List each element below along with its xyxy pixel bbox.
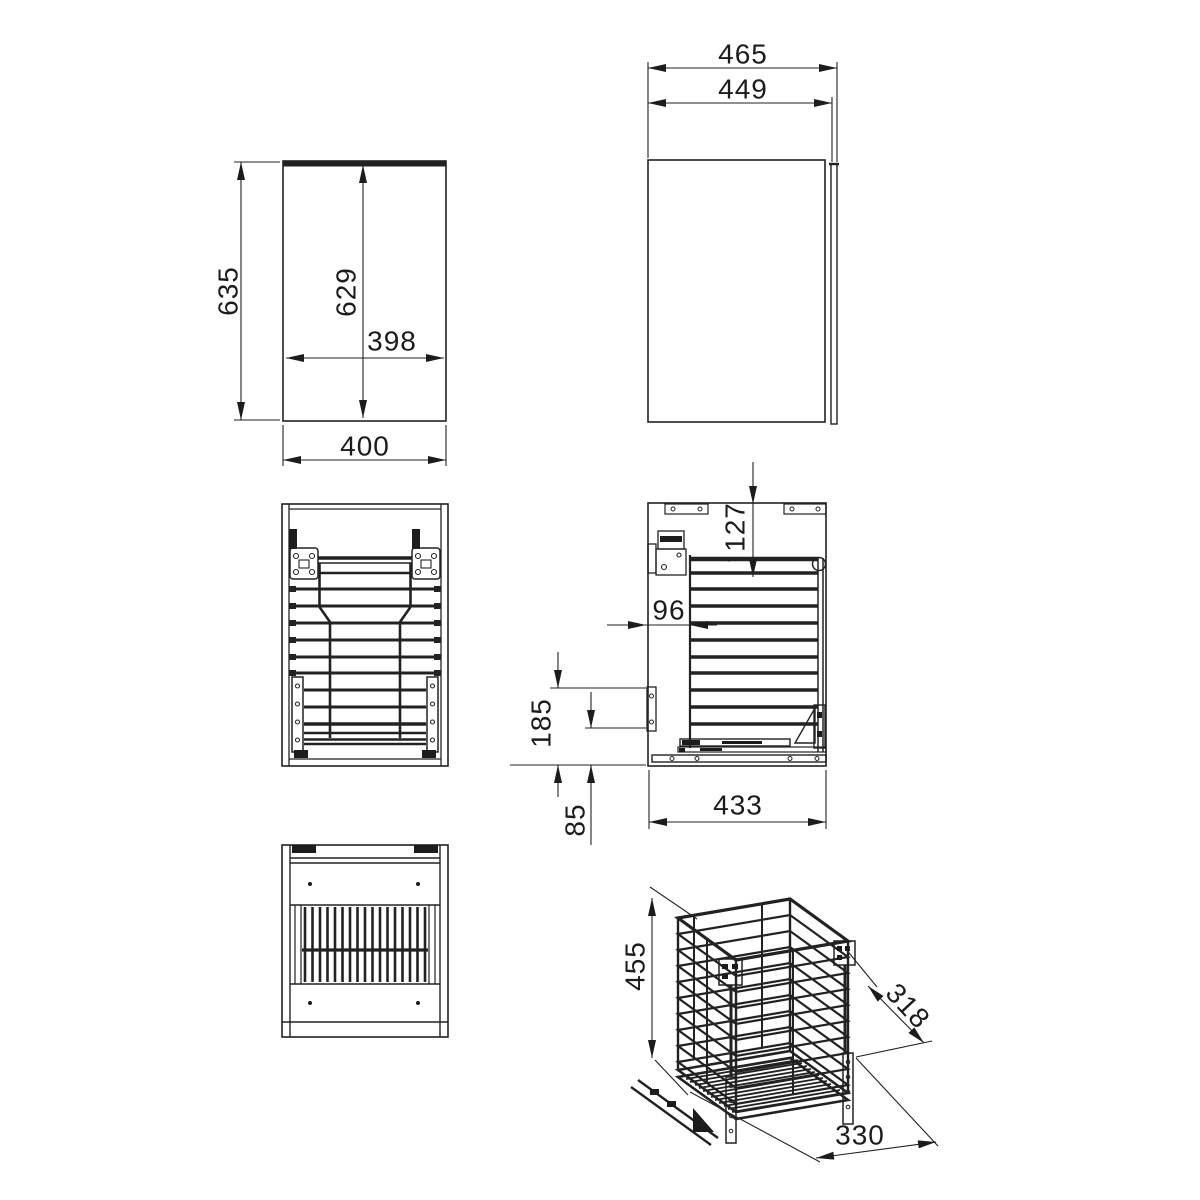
technical-drawing-page: 635 629 398 400 465 [0, 0, 1200, 1200]
dim-overall-height-label: 635 [213, 266, 244, 316]
door-panel-edge [831, 164, 837, 424]
dim-basket-depth-label: 318 [880, 977, 937, 1035]
right-hinge-nub [412, 529, 420, 549]
dimension-basket-depth: 318 [845, 948, 936, 1057]
dim-basket-height-label: 455 [620, 941, 651, 991]
dim-inner-height-label: 629 [331, 267, 362, 317]
dimension-inner-height: 629 [331, 165, 368, 418]
bottom-slide-assembly [652, 705, 826, 762]
dim-rail-height-label: 185 [526, 698, 557, 748]
basket-side-wires [690, 555, 826, 752]
front-assembly-view [282, 504, 448, 766]
dim-top-offset-label: 127 [720, 502, 751, 552]
iso-basket-view: 455 318 330 [620, 887, 939, 1162]
dimension-front-offset: 96 [607, 595, 717, 630]
dim-inner-width-label: 398 [367, 326, 417, 357]
side-assembly-view: 127 96 185 85 433 [510, 462, 826, 845]
basket-bottom-grate [290, 905, 440, 984]
top-assembly-view [282, 845, 448, 1037]
left-hinge-nub [289, 529, 297, 549]
front-panel-view: 635 629 398 400 [213, 161, 447, 466]
dimension-overall-width: 400 [283, 425, 446, 466]
wire-end-caps [289, 589, 441, 673]
drawing-sheet: 635 629 398 400 465 [0, 0, 1200, 1200]
dimension-inner-width: 398 [286, 326, 444, 363]
basket-front-wires [289, 558, 441, 744]
dimension-rail-height: 185 85 [510, 652, 646, 845]
hinge-bracket [648, 531, 686, 575]
dim-bottom-offset-label: 85 [560, 803, 591, 836]
basket-base [678, 1051, 848, 1119]
dim-body-depth-label: 449 [718, 74, 768, 105]
dimension-basket-width: 330 [690, 1058, 938, 1162]
dim-basket-width-label: 330 [835, 1120, 885, 1151]
dim-overall-width-label: 400 [340, 431, 390, 462]
cabinet-depth-view: 465 449 [648, 39, 839, 425]
dim-inner-depth-label: 433 [713, 790, 763, 821]
dimension-overall-height: 635 [213, 162, 281, 420]
right-mount-bracket [412, 548, 440, 579]
dimension-inner-depth: 433 [649, 770, 826, 829]
dim-front-offset-label: 96 [652, 595, 685, 626]
dimension-body-depth: 449 [648, 74, 832, 163]
dim-overall-depth-label: 465 [718, 39, 768, 70]
left-mount-bracket [290, 548, 318, 579]
